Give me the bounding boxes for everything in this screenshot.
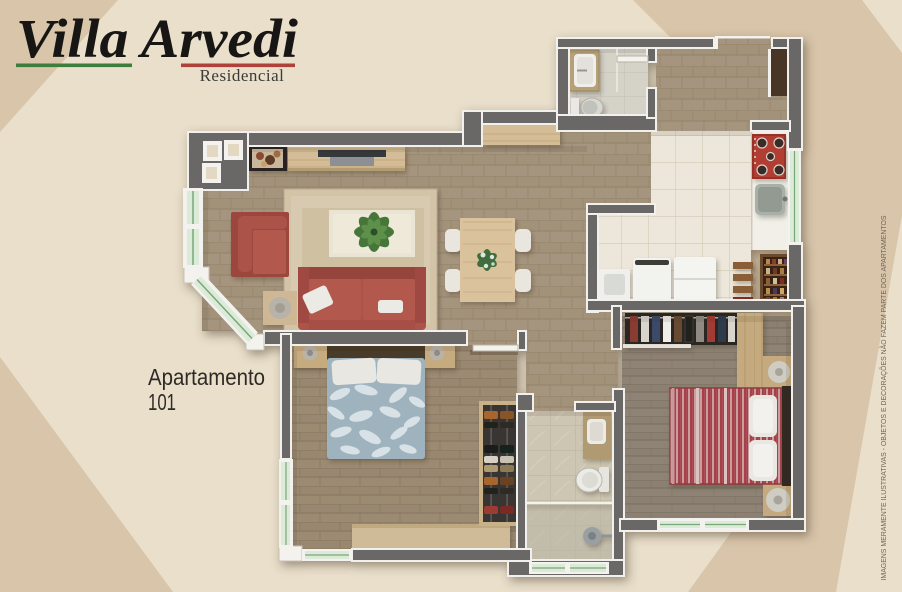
svg-text:Apartamento: Apartamento <box>148 364 265 390</box>
svg-text:101: 101 <box>148 389 176 415</box>
svg-text:Villa Arvedi: Villa Arvedi <box>16 8 299 69</box>
svg-text:Residencial: Residencial <box>200 66 285 85</box>
svg-text:IMAGENS MERAMENTE ILUSTRATIVAS: IMAGENS MERAMENTE ILUSTRATIVAS - OBJETOS… <box>879 216 888 581</box>
